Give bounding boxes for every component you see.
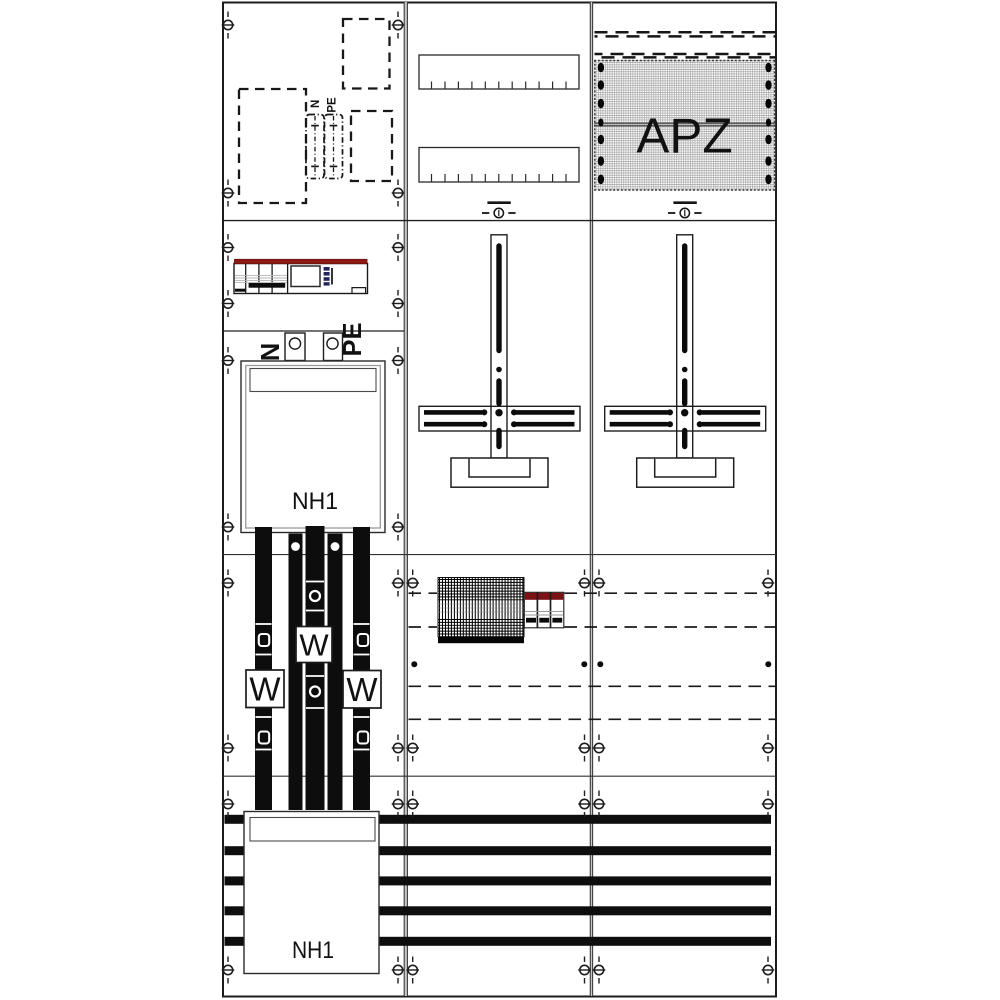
svg-text:NH1: NH1: [292, 937, 334, 964]
svg-text:PE: PE: [339, 322, 367, 356]
svg-text:PE: PE: [327, 97, 339, 113]
svg-text:APZ: APZ: [636, 109, 732, 164]
svg-text:W: W: [249, 671, 281, 708]
svg-text:W: W: [346, 671, 378, 708]
svg-text:NH1: NH1: [292, 488, 338, 515]
svg-text:N: N: [257, 343, 285, 361]
svg-text:W: W: [299, 628, 329, 663]
svg-text:N: N: [310, 100, 322, 108]
